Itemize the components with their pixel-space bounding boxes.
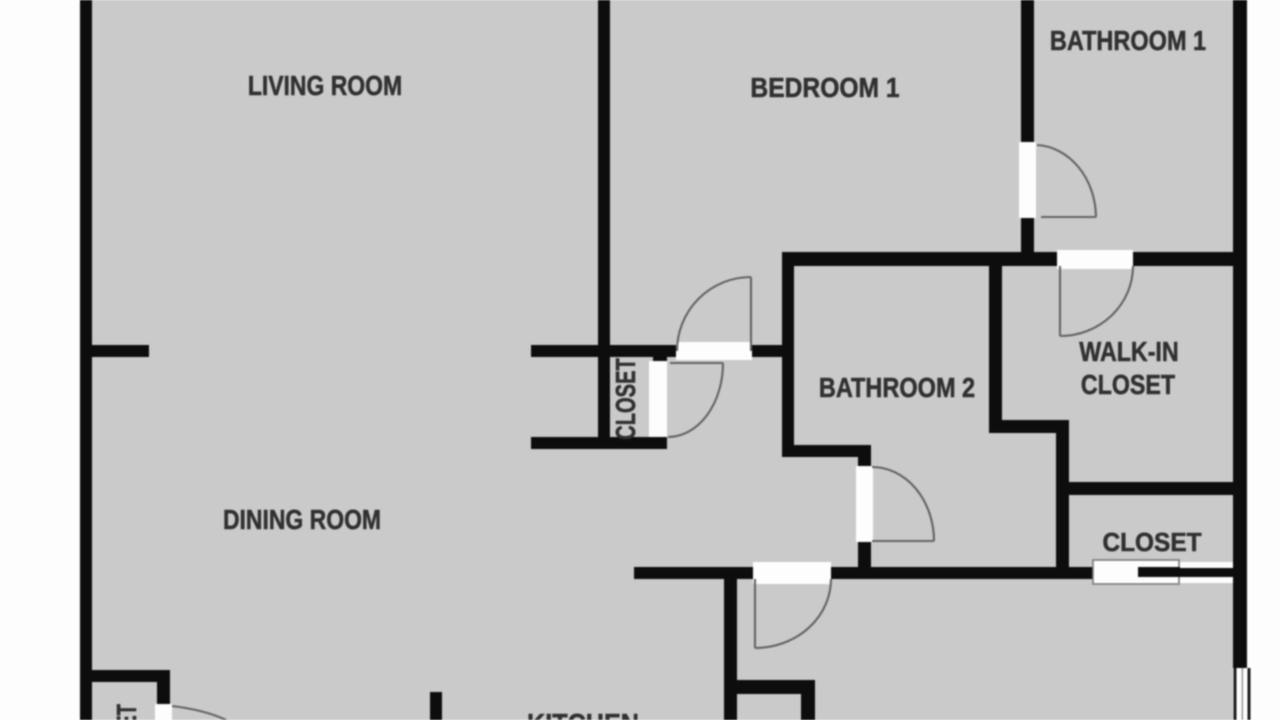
svg-text:LIVING ROOM: LIVING ROOM [248, 71, 402, 102]
svg-text:DINING ROOM: DINING ROOM [223, 505, 381, 536]
svg-text:CLOSET: CLOSET [611, 358, 642, 440]
svg-text:CLOSET: CLOSET [1081, 370, 1175, 400]
svg-text:BATHROOM 1: BATHROOM 1 [1050, 26, 1206, 56]
svg-text:CLOSET: CLOSET [112, 704, 143, 720]
svg-text:WALK-IN: WALK-IN [1079, 337, 1178, 367]
svg-text:CLOSET: CLOSET [1102, 528, 1202, 557]
svg-text:BEDROOM 1: BEDROOM 1 [750, 72, 899, 104]
svg-text:BATHROOM 2: BATHROOM 2 [819, 373, 975, 403]
svg-text:KITCHEN: KITCHEN [527, 708, 639, 720]
